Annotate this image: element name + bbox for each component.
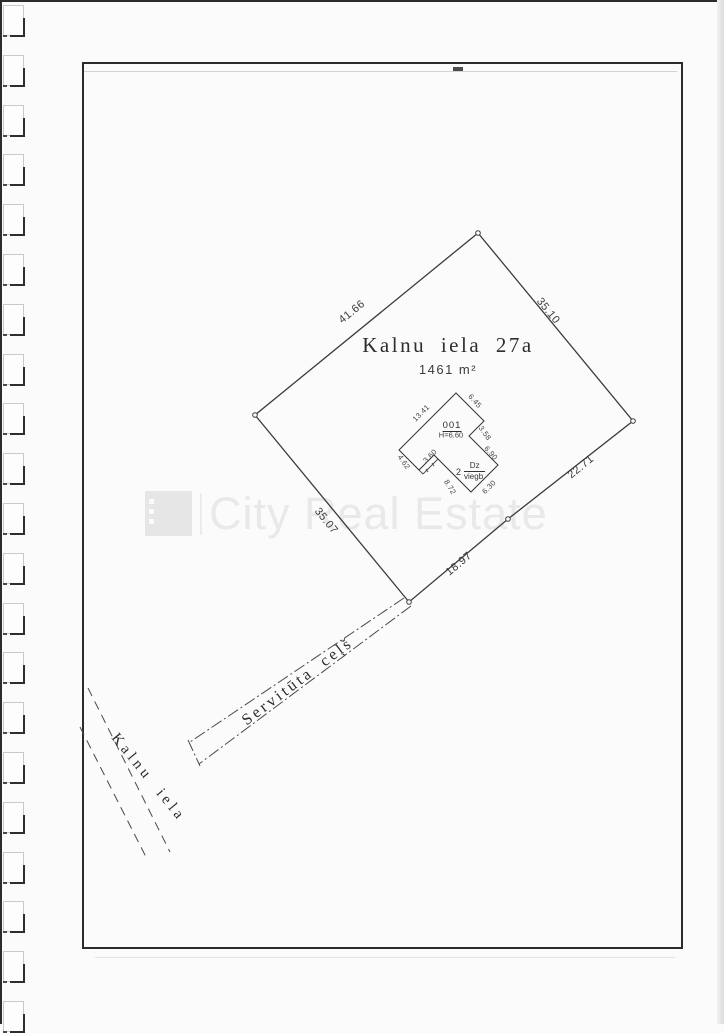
street-edges <box>80 688 170 857</box>
plot-address: Kalnu iela 27a <box>338 333 558 358</box>
plot-title-block: Kalnu iela 27a 1461 m² <box>338 333 558 377</box>
building-classification: 2 Dz viegb. <box>456 462 485 481</box>
building-height: H=6.60 <box>439 431 463 440</box>
building-type-code: Dz <box>464 462 485 472</box>
plot-boundary <box>255 233 633 602</box>
building-construction: viegb. <box>464 472 485 481</box>
boundary-point-markers <box>253 231 636 605</box>
survey-linework <box>0 0 724 1024</box>
plot-area: 1461 m² <box>338 362 558 377</box>
scanned-cadastral-plan-page: { "plot": { "title": "Kalnu iela 27a", "… <box>0 0 724 1024</box>
building-type-fraction: Dz viegb. <box>464 462 485 481</box>
building-storeys: 2 <box>456 467 461 477</box>
